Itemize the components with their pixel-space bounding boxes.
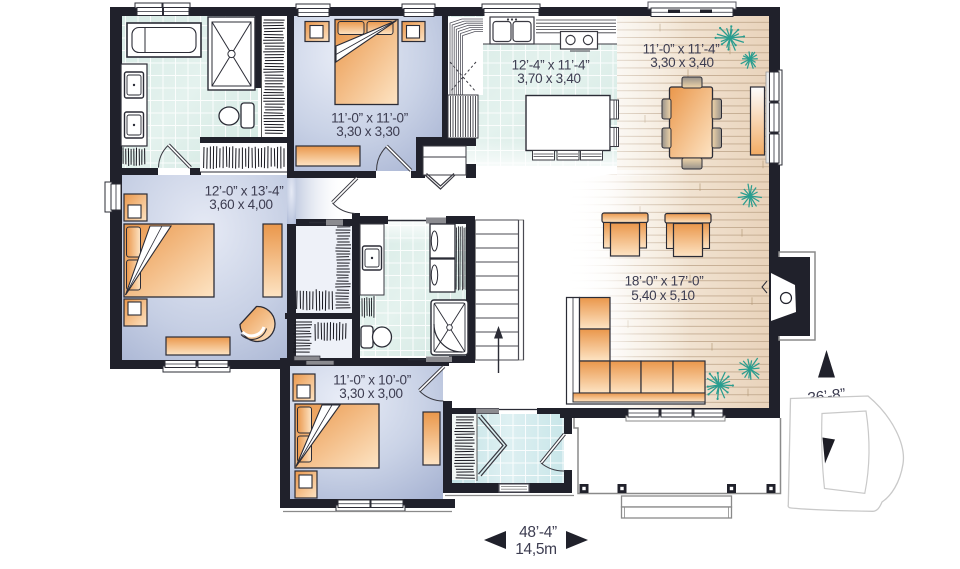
svg-text:3,30 x 3,40: 3,30 x 3,40: [650, 55, 714, 70]
svg-text:48’-4”: 48’-4”: [519, 524, 557, 541]
svg-text:3,60 x 4,00: 3,60 x 4,00: [209, 197, 273, 212]
svg-text:5,40 x 5,10: 5,40 x 5,10: [631, 288, 695, 303]
svg-text:3,30 x 3,30: 3,30 x 3,30: [336, 124, 400, 139]
svg-text:3,30 x 3,00: 3,30 x 3,00: [339, 386, 403, 401]
svg-text:3,70 x 3,40: 3,70 x 3,40: [517, 71, 581, 86]
svg-text:18’-0” x 17’-0”: 18’-0” x 17’-0”: [625, 274, 704, 289]
svg-text:14,5m: 14,5m: [515, 541, 557, 558]
